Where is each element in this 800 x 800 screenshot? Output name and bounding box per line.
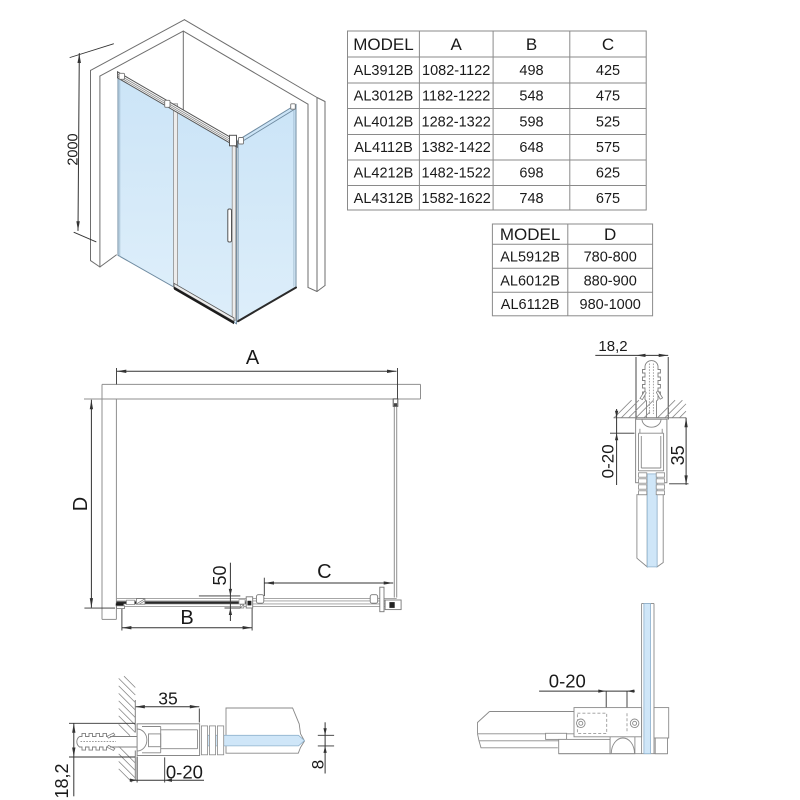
- svg-text:AL4312B: AL4312B: [354, 191, 414, 207]
- svg-text:C: C: [317, 561, 331, 583]
- svg-text:AL6012B: AL6012B: [500, 274, 560, 290]
- svg-text:AL4212B: AL4212B: [354, 166, 414, 182]
- svg-text:1482-1522: 1482-1522: [422, 166, 491, 182]
- svg-text:475: 475: [596, 89, 620, 105]
- svg-text:B: B: [526, 35, 537, 54]
- svg-text:MODEL: MODEL: [500, 225, 560, 244]
- svg-text:0-20: 0-20: [549, 670, 586, 691]
- svg-text:698: 698: [519, 166, 543, 182]
- svg-text:AL4112B: AL4112B: [354, 140, 413, 156]
- svg-text:AL3012B: AL3012B: [354, 89, 414, 105]
- svg-text:AL5912B: AL5912B: [500, 250, 560, 266]
- svg-text:748: 748: [519, 191, 543, 207]
- svg-text:18,2: 18,2: [598, 338, 627, 355]
- svg-text:575: 575: [596, 140, 620, 156]
- svg-text:780-800: 780-800: [584, 250, 637, 266]
- svg-text:2000: 2000: [66, 133, 82, 165]
- svg-text:1182-1222: 1182-1222: [422, 89, 490, 105]
- svg-text:598: 598: [519, 115, 543, 131]
- svg-text:625: 625: [596, 166, 620, 182]
- svg-text:8: 8: [308, 760, 327, 769]
- svg-text:0-20: 0-20: [598, 444, 617, 478]
- svg-text:0-20: 0-20: [166, 761, 203, 782]
- svg-text:MODEL: MODEL: [353, 35, 413, 54]
- svg-text:35: 35: [668, 445, 688, 465]
- svg-text:675: 675: [596, 191, 620, 207]
- svg-text:1082-1122: 1082-1122: [422, 63, 490, 79]
- svg-text:1282-1322: 1282-1322: [422, 115, 491, 131]
- svg-text:C: C: [602, 35, 614, 54]
- svg-text:AL4012B: AL4012B: [354, 115, 414, 131]
- svg-text:548: 548: [519, 89, 543, 105]
- svg-text:1382-1422: 1382-1422: [422, 140, 491, 156]
- svg-text:A: A: [451, 35, 463, 54]
- svg-text:498: 498: [519, 63, 543, 79]
- svg-text:648: 648: [519, 140, 543, 156]
- svg-text:880-900: 880-900: [584, 274, 637, 290]
- svg-text:B: B: [180, 607, 193, 629]
- svg-text:AL3912B: AL3912B: [354, 63, 414, 79]
- svg-text:35: 35: [158, 689, 177, 709]
- svg-text:D: D: [604, 225, 616, 244]
- svg-text:1582-1622: 1582-1622: [422, 191, 491, 207]
- svg-text:425: 425: [596, 63, 620, 79]
- svg-text:A: A: [246, 347, 260, 369]
- svg-text:50: 50: [210, 565, 230, 585]
- svg-text:525: 525: [596, 115, 620, 131]
- svg-text:AL6112B: AL6112B: [501, 297, 560, 313]
- svg-text:980-1000: 980-1000: [580, 297, 641, 313]
- svg-text:D: D: [70, 497, 92, 511]
- svg-text:18,2: 18,2: [52, 763, 72, 798]
